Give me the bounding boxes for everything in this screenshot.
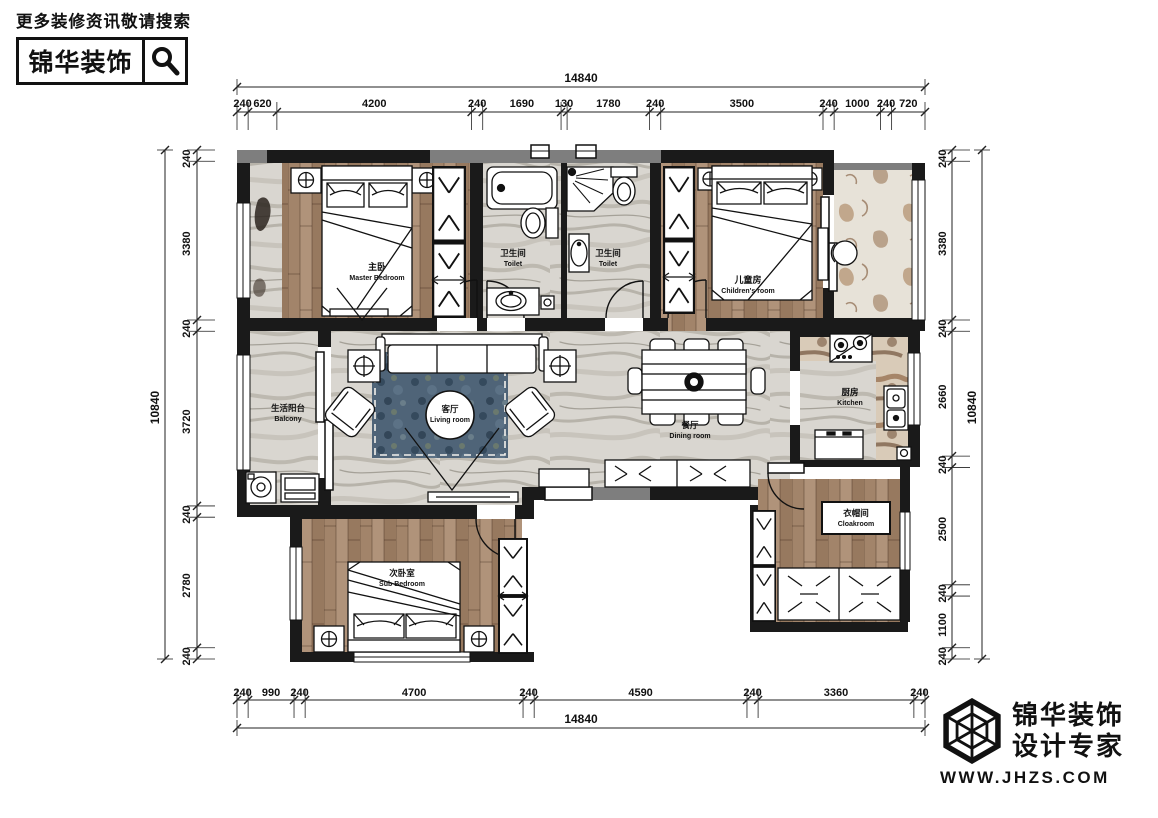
dimension-label: 3720 <box>181 409 193 433</box>
sub-nightstand-left <box>314 626 344 652</box>
children-wardrobe <box>663 167 695 313</box>
dimension-label: 240 <box>743 687 761 699</box>
dimension-label: 240 <box>290 687 308 699</box>
dimension-label: 2660 <box>937 384 949 408</box>
room-label-cn-sub-bedroom: 次卧室 <box>389 568 415 578</box>
room-label-en-balcony: Balcony <box>274 416 301 423</box>
room-label-cn-master-bedroom: 主卧 <box>368 261 386 272</box>
room-label-cn-toilet-1: 卫生间 <box>500 248 526 258</box>
master-wardrobe <box>432 167 466 316</box>
fridge <box>815 430 863 459</box>
dimension-label: 4700 <box>402 687 426 699</box>
floorplan-page: 更多装修资讯敬请搜索 锦华装饰 <box>0 0 1158 818</box>
dimension-label: 240 <box>181 647 193 665</box>
dimension-label: 2500 <box>937 517 949 541</box>
dimension-label: 240 <box>233 687 251 699</box>
dimension-label: 1000 <box>845 98 869 110</box>
cloakroom-wardrobe-left <box>753 511 775 621</box>
dimension-label: 3380 <box>937 231 949 255</box>
dimension-label: 10840 <box>148 390 162 424</box>
washing-machine <box>246 472 276 503</box>
room-label-en-dining-room: Dining room <box>669 433 710 440</box>
dimension-label: 3380 <box>181 231 193 255</box>
room-label-en-sub-bedroom: Sub Bedroom <box>379 581 425 588</box>
room-label-en-toilet-2: Toilet <box>599 261 618 268</box>
dimension-label: 14840 <box>564 712 598 726</box>
dimension-label: 240 <box>937 149 949 167</box>
dimension-label: 240 <box>468 98 486 110</box>
dimension-label: 620 <box>253 98 271 110</box>
children-bed <box>712 166 812 300</box>
dimension-label: 3500 <box>730 98 754 110</box>
room-label-en-cloakroom: Cloakroom <box>838 521 875 528</box>
dimension-label: 240 <box>519 687 537 699</box>
room-label-en-living-room: Living room <box>430 417 470 424</box>
dimension-label: 240 <box>646 98 664 110</box>
entry-bench <box>539 469 589 487</box>
toilet2-sink <box>569 234 589 272</box>
master-nightstand-left <box>291 168 321 193</box>
floor-drain <box>897 447 911 460</box>
side-table-right <box>544 350 576 382</box>
master-bed <box>322 166 412 316</box>
dimension-label: 240 <box>937 584 949 602</box>
room-label-en-master-bedroom: Master Bedroom <box>349 275 404 282</box>
dimension-label: 1690 <box>510 98 534 110</box>
dimension-label: 4590 <box>628 687 652 699</box>
room-label-cn-living-room: 客厅 <box>440 404 459 414</box>
dimension-label: 1100 <box>937 613 949 637</box>
dimension-label: 240 <box>877 98 895 110</box>
dimension-label: 990 <box>262 687 280 699</box>
room-label-cn-toilet-2: 卫生间 <box>595 248 621 258</box>
dimension-label: 2780 <box>181 573 193 597</box>
room-label-cn-cloakroom: 衣帽间 <box>843 508 869 518</box>
sofa <box>376 334 548 373</box>
dimension-label: 240 <box>181 505 193 523</box>
dimension-label: 240 <box>937 456 949 474</box>
toilet2-wc <box>611 167 637 205</box>
balcony-cabinet <box>281 474 319 502</box>
room-label-en-kitchen: Kitchen <box>837 400 863 407</box>
dining-chair-right <box>751 368 765 394</box>
dimension-label: 240 <box>181 319 193 337</box>
kitchen-sink <box>884 386 908 430</box>
stove <box>830 334 872 362</box>
dimension-label: 130 <box>555 98 573 110</box>
dimension-label: 720 <box>899 98 917 110</box>
dimension-label: 240 <box>937 647 949 665</box>
room-label-cn-dining-room: 餐厅 <box>680 420 699 430</box>
bathtub <box>487 167 557 209</box>
cloakroom-label-box <box>822 502 890 534</box>
dimension-label: 240 <box>233 98 251 110</box>
room-label-en-children-room: Children's room <box>721 288 774 295</box>
dimension-label: 240 <box>937 319 949 337</box>
room-label-en-toilet-1: Toilet <box>504 261 523 268</box>
room-label-cn-balcony: 生活阳台 <box>271 403 306 413</box>
dimension-label: 240 <box>181 149 193 167</box>
dimension-label: 4200 <box>362 98 386 110</box>
side-table-left <box>348 350 380 382</box>
dimension-label: 240 <box>910 687 928 699</box>
room-label-cn-kitchen: 厨房 <box>841 387 858 397</box>
cloakroom-wardrobe-bottom <box>778 568 900 620</box>
dimension-label: 1780 <box>596 98 620 110</box>
room-label-cn-children-room: 儿童房 <box>733 274 761 285</box>
dimension-label: 3360 <box>824 687 848 699</box>
coffee-table <box>426 391 474 439</box>
sub-wardrobe <box>498 539 528 653</box>
floorplan-svg: 主卧Master Bedroom卫生间Toilet卫生间Toilet儿童房Chi… <box>0 0 1158 818</box>
dining-table <box>642 350 746 414</box>
sub-nightstand-right <box>464 626 494 652</box>
dimension-label: 14840 <box>564 71 598 85</box>
dining-chair-left <box>628 368 642 394</box>
toilet1-wc <box>521 208 558 238</box>
dimension-label: 10840 <box>965 390 979 424</box>
entry-sideboard <box>605 460 750 487</box>
dimension-label: 240 <box>819 98 837 110</box>
